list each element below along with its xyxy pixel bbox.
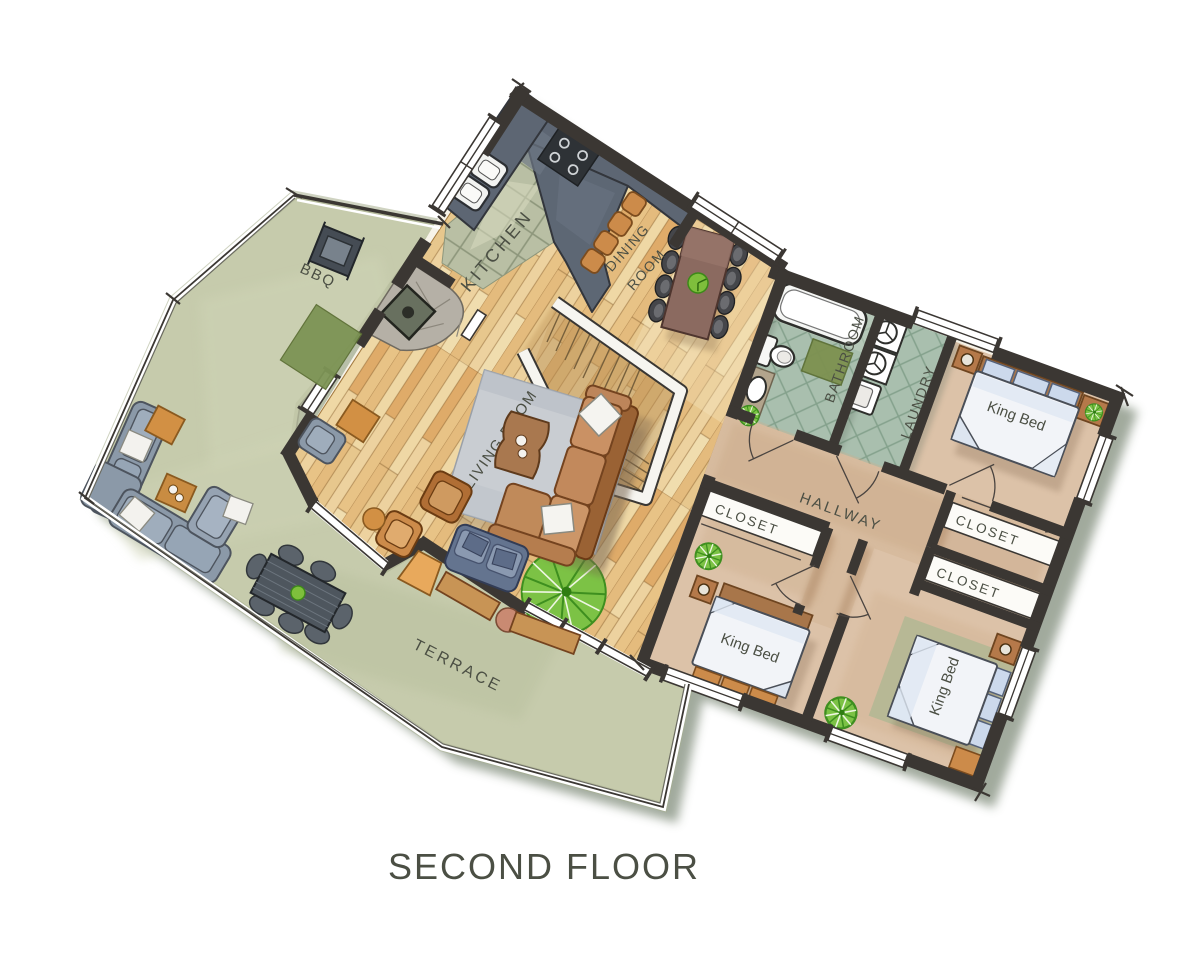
svg-text:SECOND FLOOR: SECOND FLOOR	[388, 846, 700, 887]
